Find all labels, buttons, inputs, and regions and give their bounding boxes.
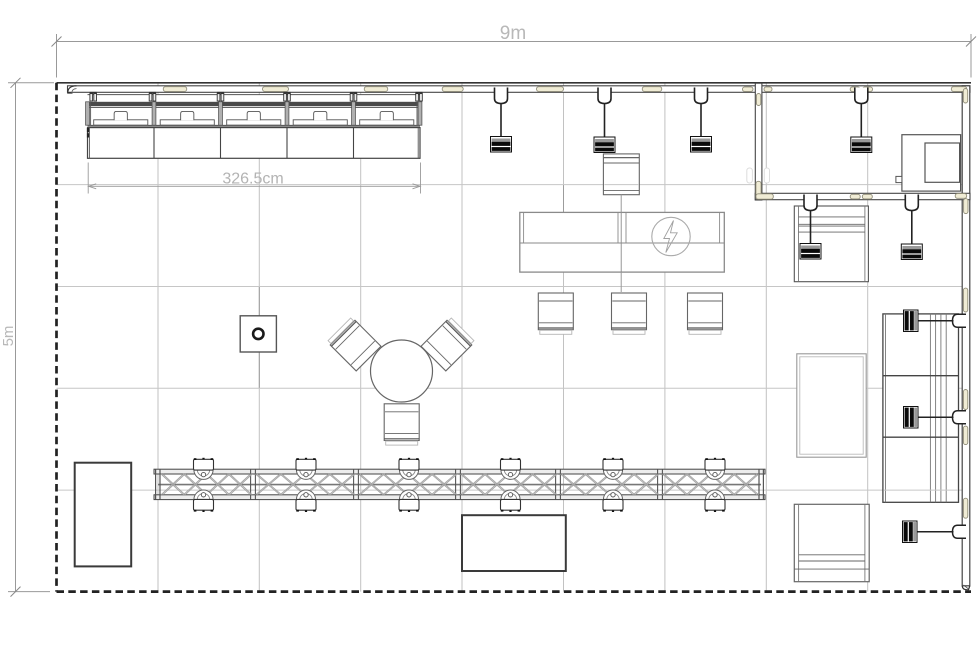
svg-text:326.5cm: 326.5cm [222, 171, 283, 188]
svg-text:9m: 9m [500, 23, 526, 44]
svg-text:5m: 5m [0, 326, 17, 347]
